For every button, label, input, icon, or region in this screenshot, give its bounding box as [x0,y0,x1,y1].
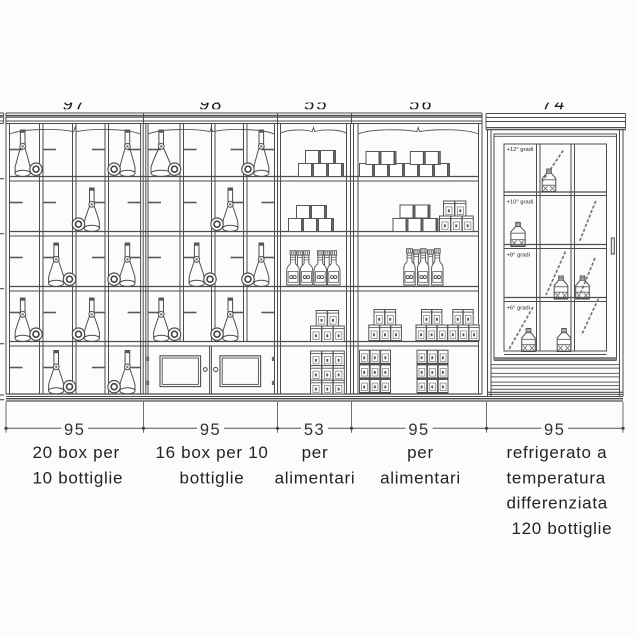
svg-text:refrigerato a: refrigerato a [507,443,608,462]
svg-text:+6° gradi: +6° gradi [507,305,530,311]
svg-text:95: 95 [64,421,85,439]
svg-text:95: 95 [408,421,429,439]
svg-text:alimentari: alimentari [275,468,356,487]
svg-text:+10° gradi: +10° gradi [507,199,534,205]
svg-text:16 box per 10: 16 box per 10 [155,443,268,462]
svg-text:53: 53 [304,421,325,439]
svg-text:+8° gradi: +8° gradi [507,252,530,258]
svg-text:per: per [407,443,434,462]
svg-text:differenziata: differenziata [507,494,608,513]
svg-text:10 bottiglie: 10 bottiglie [33,468,124,487]
svg-text:95: 95 [544,421,565,439]
svg-text:bottiglie: bottiglie [180,468,245,487]
svg-text:20 box per: 20 box per [33,443,120,462]
svg-text:temperatura: temperatura [507,468,606,487]
svg-text:alimentari: alimentari [380,468,461,487]
svg-text:95: 95 [200,421,221,439]
svg-text:+12° gradi: +12° gradi [507,147,534,153]
svg-text:per: per [302,443,329,462]
svg-text:120 bottiglie: 120 bottiglie [512,519,613,538]
